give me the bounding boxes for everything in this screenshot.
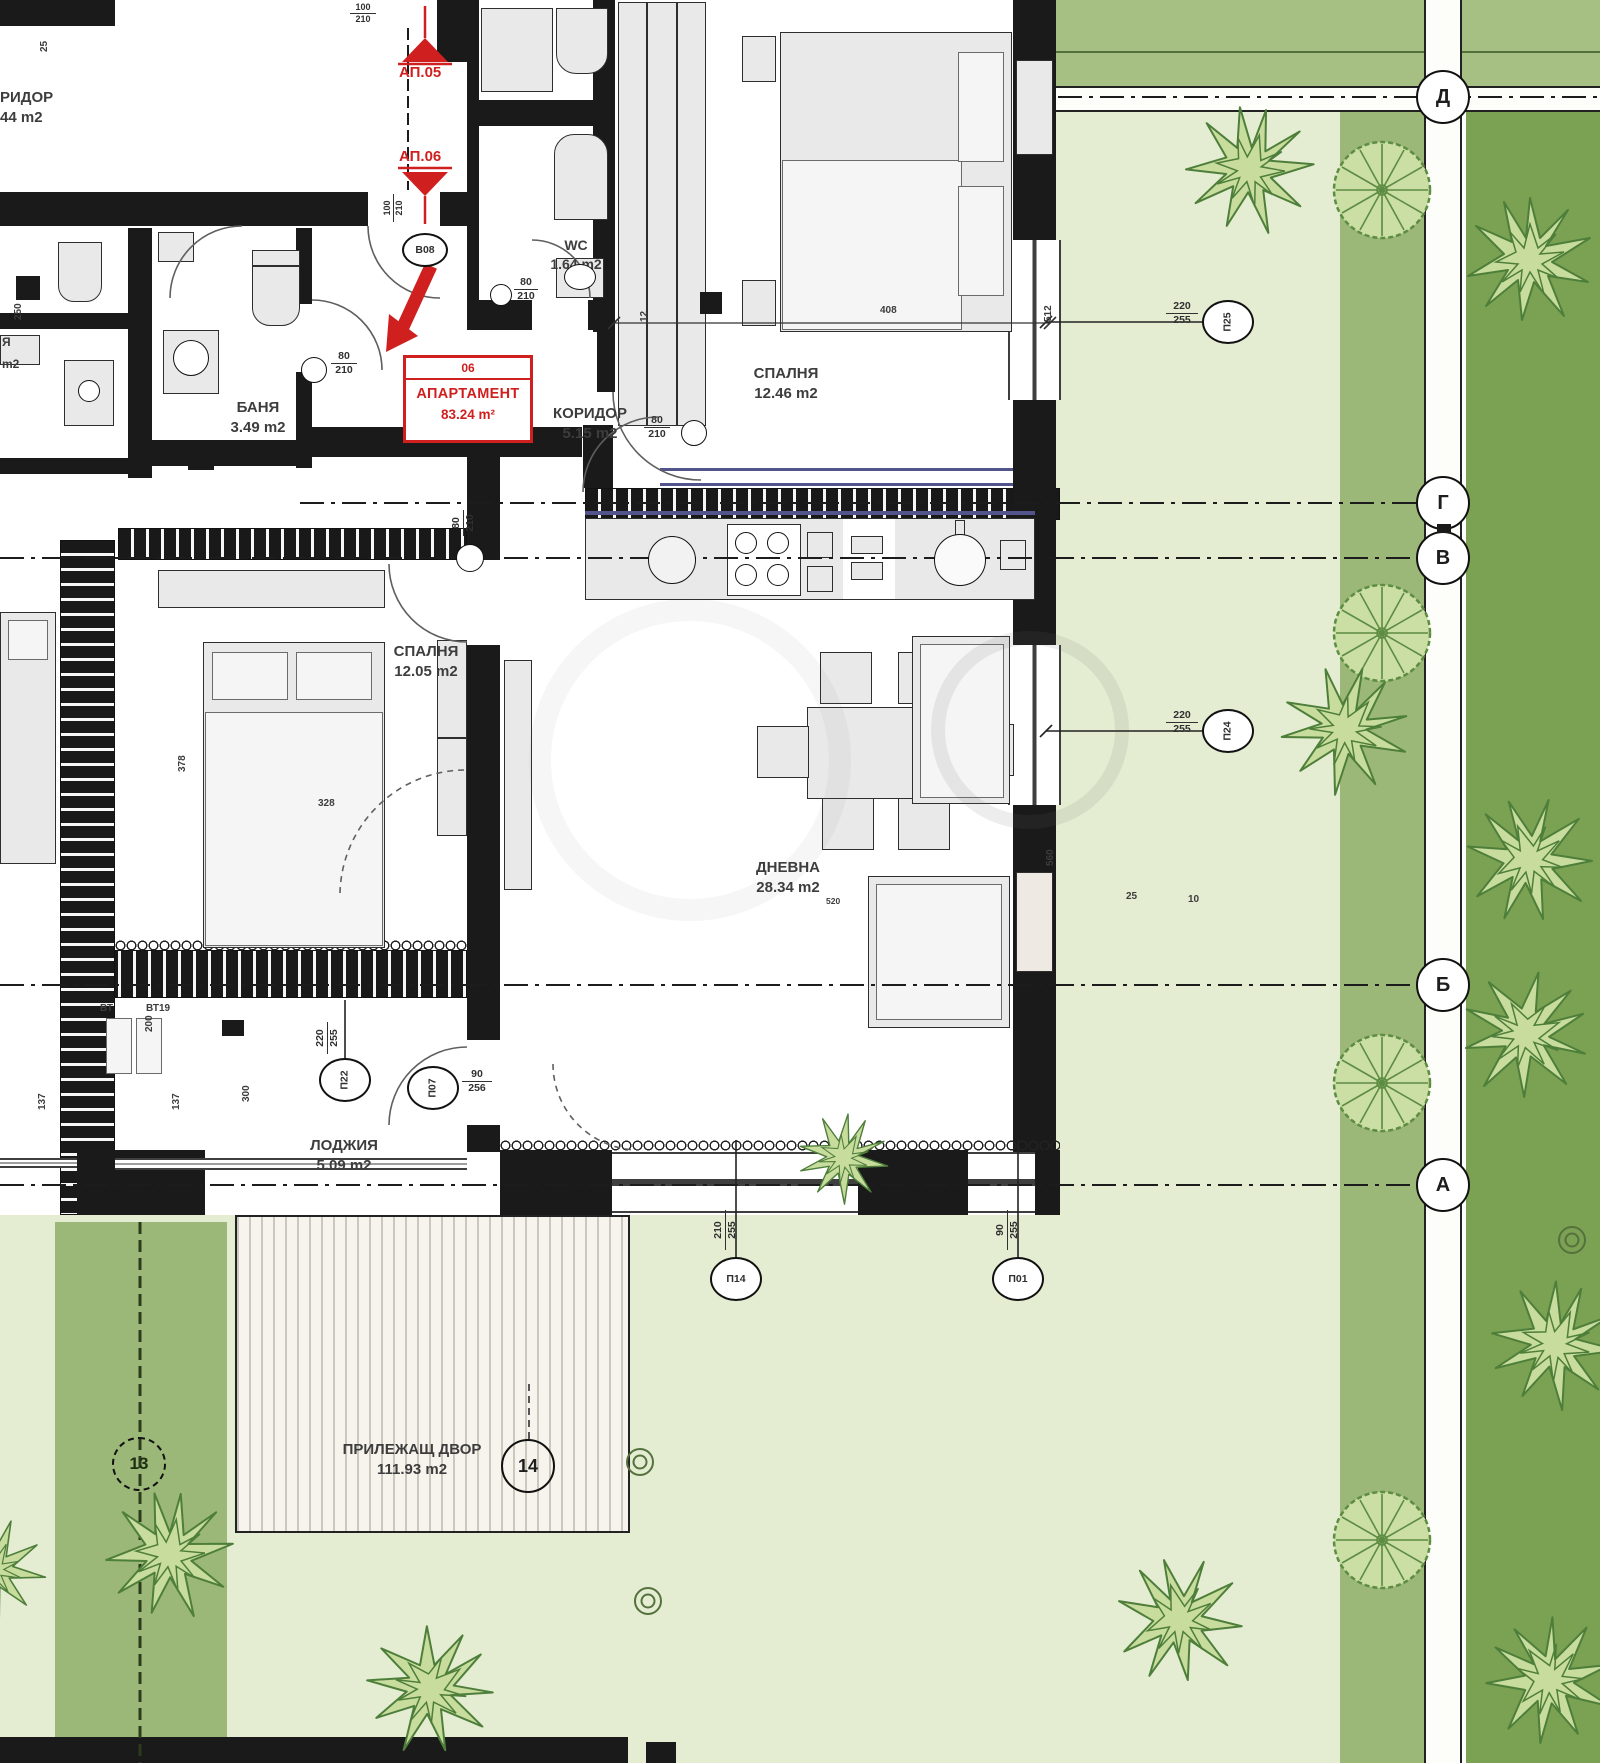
dim-width: 220 (314, 1022, 327, 1054)
wall-wc-left (467, 0, 479, 302)
chair (757, 726, 809, 778)
window-tag-label: П01 (1008, 1273, 1027, 1285)
pillow (958, 52, 1004, 162)
dim-width: 210 (712, 1210, 725, 1250)
dim-10: 10 (1188, 895, 1199, 905)
garden-dark-strip (1466, 0, 1600, 1763)
wall-loggia-top (60, 950, 467, 998)
washing-machine-door (173, 340, 209, 376)
terrace-deck (235, 1215, 630, 1533)
door-size-tag: 80210 (331, 350, 357, 377)
door-tag-circle (681, 420, 707, 446)
washer-icon (648, 536, 696, 584)
small-appliance (1000, 540, 1026, 570)
garden-path-horizontal (1056, 86, 1600, 112)
wall-bedroom2-top (118, 528, 467, 560)
dim-width: 80 (644, 414, 670, 427)
pillow (8, 620, 48, 660)
dim-408: 408 (880, 306, 897, 316)
burner-icon (735, 532, 757, 554)
wall-exterior-bottom (858, 1150, 968, 1215)
window-size-p14: 210255 (712, 1210, 739, 1250)
door-tag-label: В08 (415, 244, 434, 256)
dim-living-note: 520 (826, 897, 840, 906)
wall-corridor (440, 192, 470, 226)
kitchen-drawer (851, 536, 883, 554)
vent-box (106, 1018, 132, 1074)
room-area: 28.34 m2 (756, 878, 820, 898)
wc-sink-bowl (564, 264, 596, 290)
dim-25: 25 (1126, 892, 1137, 902)
bed-blanket (205, 712, 383, 946)
room-area: 44 m2 (0, 108, 53, 128)
room-area: 5.09 m2 (310, 1156, 378, 1176)
dim-height: 210 (514, 289, 538, 303)
burner-icon (767, 532, 789, 554)
room-label-yard: ПРИЛЕЖАЩ ДВОР 111.93 m2 (343, 1440, 482, 1481)
plot-number: 13 (130, 1454, 149, 1474)
dim-378: 378 (178, 755, 188, 772)
dim-137: 137 (172, 1093, 182, 1110)
wall-segment (437, 0, 470, 62)
wardrobe-divider (437, 737, 467, 739)
window-size-p01: 90255 (994, 1210, 1021, 1250)
door-size-tag: 100210 (350, 2, 376, 26)
grid-axis-A: А (1416, 1158, 1470, 1212)
wall-bedroom2-living (467, 645, 500, 1040)
kitchen-upper-line (585, 511, 1035, 515)
door-tag-circle (456, 544, 484, 572)
garden-top-band (1056, 0, 1600, 86)
dim-25: 25 (40, 41, 50, 52)
window-tag-p07: П07 (407, 1066, 459, 1110)
chair (822, 798, 874, 850)
dim-200: 200 (145, 1015, 155, 1032)
dim-height: 255 (1166, 722, 1198, 736)
dim-height: 255 (1166, 313, 1198, 327)
kitchen-cabinet (807, 566, 833, 592)
wall-neighbor (0, 458, 152, 474)
window-tag-label: П22 (339, 1070, 351, 1089)
dim-height: 210 (393, 194, 405, 222)
wall-segment (0, 0, 115, 26)
bath-sink (158, 232, 194, 262)
window-p14 (612, 1152, 858, 1213)
window-p01 (968, 1152, 1035, 1213)
pillow (212, 652, 288, 700)
room-area: 3.49 m2 (230, 418, 285, 438)
plot-marker-13: 13 (112, 1437, 166, 1491)
wall-party-hatched (60, 540, 115, 1215)
toilet (554, 134, 608, 220)
axis-tick (1437, 524, 1451, 533)
door-size-tag: 80210 (450, 510, 477, 536)
pillow (296, 652, 372, 700)
shaft-block (1016, 872, 1053, 972)
window-tag-p25: П25 (1202, 300, 1254, 344)
apartment-area: 83.24 m² (406, 408, 530, 422)
window-size-p22: 220255 (314, 1022, 341, 1054)
dim-137: 137 (38, 1093, 48, 1110)
toilet (58, 242, 102, 302)
vent-label: ВТ (100, 1004, 113, 1014)
kitchen-cabinet (807, 532, 833, 558)
room-name: КОРИДОР (553, 404, 627, 424)
radiator (188, 452, 214, 470)
wall-exterior-bottom (1035, 1150, 1060, 1215)
room-label-bath: БАНЯ 3.49 m2 (230, 398, 285, 439)
grid-axis-label: Г (1437, 492, 1448, 515)
toilet (556, 8, 608, 74)
dim-width: 80 (450, 510, 463, 536)
edge-fragment: Я (2, 336, 11, 348)
room-area: 111.93 m2 (343, 1460, 482, 1480)
chair (898, 798, 950, 850)
plot-marker-14: 14 (501, 1439, 555, 1493)
dim-width: 80 (331, 350, 357, 363)
wall-bedroom2-living (467, 1125, 500, 1152)
room-name: ЛОДЖИЯ (310, 1136, 378, 1156)
grid-axis-B: Б (1416, 958, 1470, 1012)
radiator (16, 276, 40, 300)
nightstand (742, 36, 776, 82)
dim-height: 255 (725, 1210, 739, 1250)
dim-512: 512 (1044, 305, 1054, 322)
door-tag-circle (301, 357, 327, 383)
dim-width: 220 (1166, 300, 1198, 313)
window-tag-label: П25 (1222, 312, 1234, 331)
room-name: ДНЕВНА (756, 858, 820, 878)
room-name: СПАЛНЯ (754, 364, 819, 384)
room-label-corridor-top: РИДОР 44 m2 (0, 88, 53, 129)
armchair-cushion (920, 644, 1004, 798)
sofa-cushion (876, 884, 1002, 1020)
door-size-tag: 80210 (514, 276, 538, 303)
wall-segment (597, 332, 615, 392)
grid-axis-G: Г (1416, 476, 1470, 530)
loggia-railing (115, 1158, 467, 1170)
shaft-block (1016, 60, 1053, 155)
apartment-highlight-box: 06 АПАРТАМЕНТ 83.24 m² (403, 355, 533, 443)
dim-height: 255 (1007, 1210, 1021, 1250)
shower-drain (78, 380, 100, 402)
room-label-bedroom1: СПАЛНЯ 12.46 m2 (754, 364, 819, 405)
door-tag-v08: В08 (402, 233, 448, 267)
grid-axis-label: В (1436, 547, 1450, 570)
wardrobe-divider (646, 2, 648, 426)
grid-axis-D: Д (1416, 70, 1470, 124)
burner-icon (767, 564, 789, 586)
apartment-pointer-05: АП.05 (399, 64, 441, 81)
desk (158, 570, 385, 608)
window-tag-p22: П22 (319, 1058, 371, 1102)
wall-bath-bottom (128, 440, 312, 466)
window-tag-p24: П24 (1202, 709, 1254, 753)
burner-icon (735, 564, 757, 586)
garden-path-vertical (1424, 0, 1462, 1763)
floor-plan-canvas: Д Г В Б А 13 14 В08 П25 220255 П24 22025… (0, 0, 1600, 1763)
window-size-p24: 220255 (1166, 709, 1198, 736)
room-name: WC (550, 236, 601, 255)
wall-wc-bottom (588, 300, 615, 330)
hedge-block-left (55, 1222, 227, 1763)
duct-shaft (481, 8, 553, 92)
apartment-title: АПАРТАМЕНТ (406, 387, 530, 402)
garden-lawn-right (1056, 110, 1340, 1215)
kitchen-drawer (851, 562, 883, 580)
door-tag-circle (490, 284, 512, 306)
wardrobe (618, 2, 706, 426)
dim-300: 300 (242, 1085, 252, 1102)
dim-560: 560 (1046, 849, 1056, 866)
window-p24 (1008, 645, 1061, 805)
window-sill-bedroom1 (660, 468, 1035, 486)
room-label-corridor: КОРИДОР 5.15 m2 (553, 404, 627, 445)
room-label-bedroom2: СПАЛНЯ 12.05 m2 (394, 642, 459, 683)
apartment-number: 06 (406, 358, 530, 380)
grid-axis-label: Б (1436, 974, 1450, 997)
bed-blanket (782, 160, 962, 330)
radiator (700, 292, 722, 314)
room-area: 12.05 m2 (394, 662, 459, 682)
garden-hedge-band (1340, 110, 1424, 1763)
kitchen-gap (843, 519, 895, 599)
nightstand (742, 280, 776, 326)
dim-height: 210 (463, 510, 477, 536)
dim-12: 12 (640, 311, 650, 322)
wall-wc-divider (479, 100, 593, 126)
window-size-p25: 220255 (1166, 300, 1198, 327)
room-label-living: ДНЕВНА 28.34 m2 (756, 858, 820, 899)
window-size-p07: 90256 (462, 1068, 492, 1095)
dim-width: 100 (382, 194, 393, 222)
grid-axis-label: А (1436, 1174, 1450, 1197)
door-size-tag: 80210 (644, 414, 670, 441)
radiator (222, 1020, 244, 1036)
dim-width: 100 (350, 2, 376, 13)
room-area: 5.15 m2 (553, 424, 627, 444)
dim-width: 80 (514, 276, 538, 289)
chair (820, 652, 872, 704)
pillow (958, 186, 1004, 296)
dim-height: 255 (327, 1022, 341, 1054)
room-label-loggia: ЛОДЖИЯ 5.09 m2 (310, 1136, 378, 1177)
room-name: РИДОР (0, 88, 53, 108)
wall-corridor (0, 192, 368, 226)
toilet (252, 266, 300, 326)
site-boundary-bar (0, 1737, 628, 1763)
dim-height: 256 (462, 1081, 492, 1095)
tv-console (504, 660, 532, 890)
dim-height: 210 (331, 363, 357, 377)
door-size-tag: 100210 (382, 194, 406, 222)
window-tag-p01: П01 (992, 1257, 1044, 1301)
sink-icon (934, 534, 986, 586)
edge-fragment: m2 (2, 358, 19, 370)
dim-250: 250 (14, 303, 24, 320)
dim-328: 328 (318, 799, 335, 809)
dim-height: 210 (644, 427, 670, 441)
wardrobe-divider (676, 2, 678, 426)
grid-axis-V: В (1416, 531, 1470, 585)
wall-exterior-bottom (500, 1150, 612, 1215)
vent-label: ВТ19 (146, 1004, 170, 1014)
window-tag-label: П07 (427, 1078, 439, 1097)
dim-width: 90 (462, 1068, 492, 1081)
window-tag-label: П14 (726, 1273, 745, 1285)
room-name: СПАЛНЯ (394, 642, 459, 662)
garden-top-band-line (1056, 51, 1600, 53)
wall-kitchen-hatched (585, 488, 1060, 520)
room-name: ПРИЛЕЖАЩ ДВОР (343, 1440, 482, 1460)
apartment-pointer-06: АП.06 (399, 148, 441, 165)
dim-height: 210 (350, 13, 376, 25)
room-area: 12.46 m2 (754, 384, 819, 404)
toilet-tank (252, 250, 300, 266)
plot-number: 14 (518, 1456, 538, 1477)
dim-width: 90 (994, 1210, 1007, 1250)
dim-width: 220 (1166, 709, 1198, 722)
window-tag-p14: П14 (710, 1257, 762, 1301)
room-name: БАНЯ (230, 398, 285, 418)
site-boundary-post (646, 1742, 676, 1763)
window-tag-label: П24 (1222, 721, 1234, 740)
neighbor-railing (0, 1158, 77, 1168)
grid-axis-label: Д (1436, 86, 1450, 109)
